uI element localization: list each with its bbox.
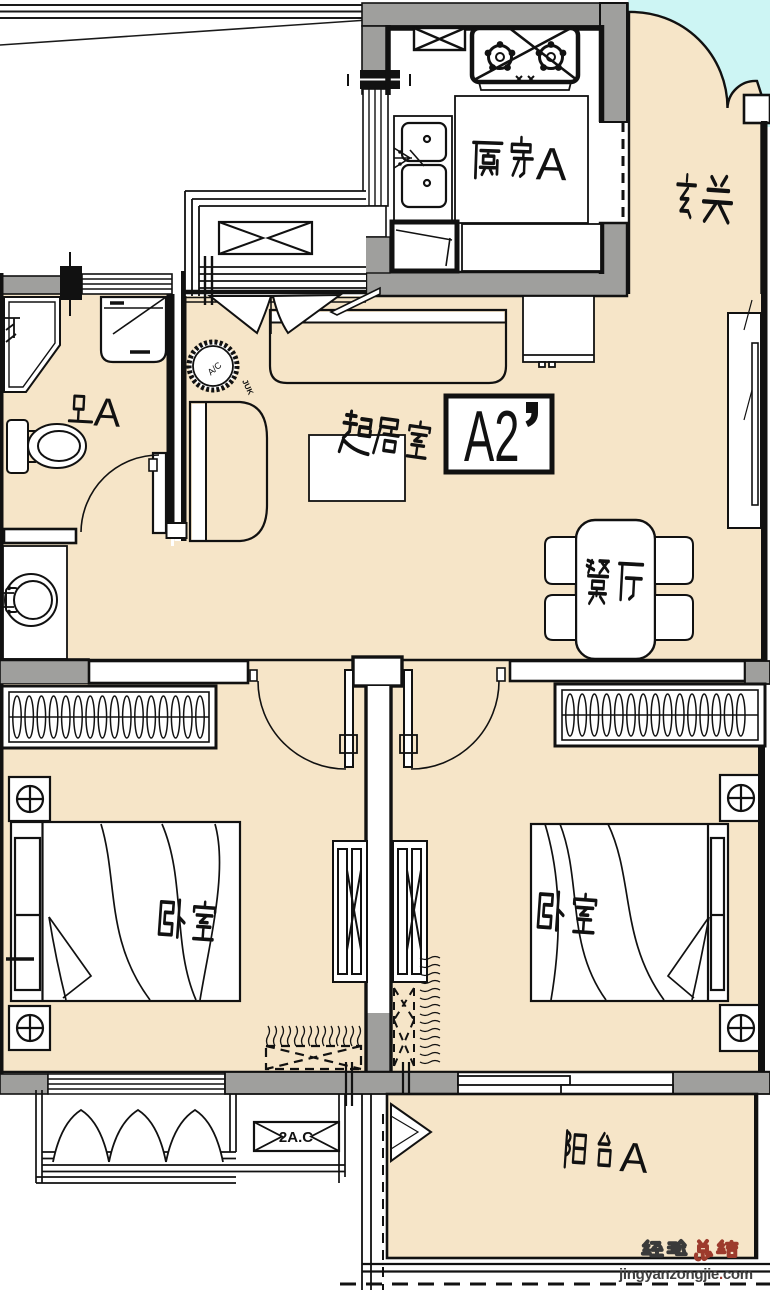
- svg-text:2A.C: 2A.C: [279, 1129, 313, 1146]
- svg-text:A: A: [93, 390, 122, 435]
- svg-text:A2: A2: [464, 396, 519, 476]
- svg-text:A: A: [618, 1133, 649, 1182]
- svg-text:A: A: [535, 137, 568, 190]
- svg-text:jingyanzongjie.com: jingyanzongjie.com: [618, 1266, 753, 1283]
